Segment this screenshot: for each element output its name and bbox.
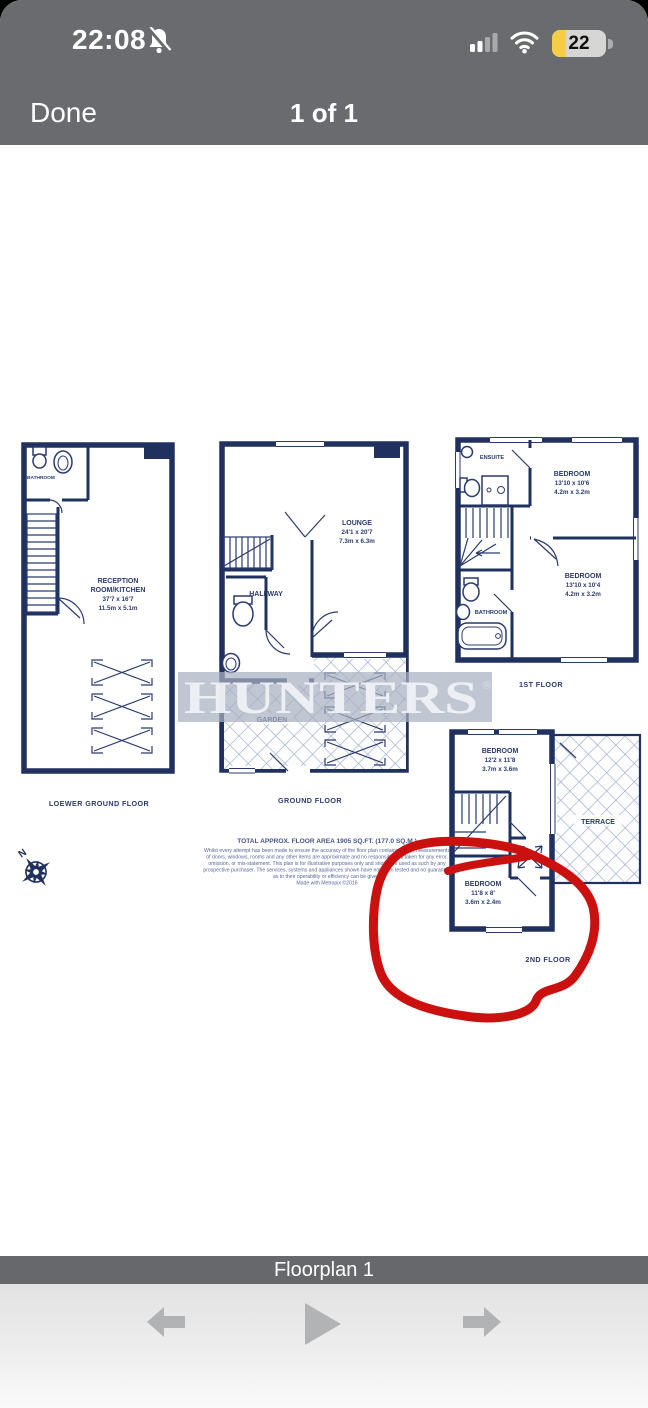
svg-text:Made with Metropix ©2016: Made with Metropix ©2016 <box>296 880 357 887</box>
floor-ground: LOUNGE 24'1 x 20'7 7.3m x 6.3m HALLWAY <box>222 439 408 805</box>
svg-text:N: N <box>17 847 29 860</box>
battery-percentage: 22 <box>552 30 606 57</box>
svg-text:13'10 x 10'4: 13'10 x 10'4 <box>566 582 601 589</box>
svg-text:HUNTERS: HUNTERS <box>184 672 478 724</box>
svg-text:prospective purchaser. The ser: prospective purchaser. The services, sys… <box>203 868 451 874</box>
svg-text:GROUND FLOOR: GROUND FLOOR <box>278 796 342 805</box>
svg-text:4.2m x 3.2m: 4.2m x 3.2m <box>554 489 590 496</box>
svg-text:RECEPTION: RECEPTION <box>98 578 139 585</box>
floorplan-drawing: BATHROOM RECEPTION ROOM/KITCHEN 37'7 x 1… <box>0 145 648 1256</box>
pager-controls <box>0 1284 648 1408</box>
svg-text:BEDROOM: BEDROOM <box>565 573 602 580</box>
svg-text:BEDROOM: BEDROOM <box>482 748 519 755</box>
svg-text:3.6m x 2.4m: 3.6m x 2.4m <box>465 899 501 906</box>
play-button[interactable] <box>305 1303 341 1350</box>
svg-text:12'2 x 11'8: 12'2 x 11'8 <box>485 757 516 764</box>
svg-text:7.3m x 6.3m: 7.3m x 6.3m <box>339 538 375 545</box>
compass-north-icon: N <box>6 839 60 895</box>
svg-text:of doors, windows, rooms and a: of doors, windows, rooms and any other i… <box>206 855 447 861</box>
floorplan-caption: Floorplan 1 <box>274 1259 374 1282</box>
svg-text:as to their operability or eff: as to their operability or efficiency ca… <box>273 874 381 880</box>
svg-text:37'7 x 16'7: 37'7 x 16'7 <box>102 596 134 603</box>
wifi-icon <box>509 31 540 59</box>
svg-text:LOUNGE: LOUNGE <box>342 520 372 527</box>
svg-text:3.7m x 3.6m: 3.7m x 3.6m <box>482 766 518 773</box>
floor-lower-ground: BATHROOM RECEPTION ROOM/KITCHEN 37'7 x 1… <box>24 443 174 808</box>
svg-text:2ND FLOOR: 2ND FLOOR <box>525 955 571 964</box>
svg-text:BEDROOM: BEDROOM <box>465 881 502 888</box>
svg-text:11.5m x 5.1m: 11.5m x 5.1m <box>99 605 138 612</box>
page-indicator: 1 of 1 <box>0 98 648 129</box>
svg-text:LOEWER GROUND FLOOR: LOEWER GROUND FLOOR <box>49 799 150 808</box>
notifications-muted-icon <box>146 27 172 60</box>
svg-text:TERRACE: TERRACE <box>581 819 615 826</box>
battery-icon: 22 <box>552 30 606 57</box>
svg-text:ROOM/KITCHEN: ROOM/KITCHEN <box>91 587 146 594</box>
svg-text:®: ® <box>483 680 491 692</box>
status-time: 22:08 <box>72 24 146 56</box>
next-button[interactable] <box>463 1306 501 1343</box>
battery-cap <box>608 39 613 49</box>
floor-first: ENSUITE BEDROOM 13'10 x 10'6 4.2m x 3.2m… <box>453 435 640 689</box>
photo-viewer-screen: 22:08 <box>0 0 648 1408</box>
cellular-signal-icon <box>470 33 498 57</box>
svg-text:1ST FLOOR: 1ST FLOOR <box>519 680 563 689</box>
top-bar: 22:08 <box>0 0 648 145</box>
previous-button[interactable] <box>147 1306 185 1343</box>
svg-text:4.2m x 3.2m: 4.2m x 3.2m <box>565 591 601 598</box>
arrow-right-icon <box>463 1306 501 1338</box>
svg-text:TOTAL APPROX. FLOOR AREA 1905: TOTAL APPROX. FLOOR AREA 1905 SQ.FT. (17… <box>237 838 417 845</box>
svg-text:BATHROOM: BATHROOM <box>475 610 508 616</box>
hunters-watermark: HUNTERS ® <box>178 672 492 724</box>
svg-text:24'1 x 20'7: 24'1 x 20'7 <box>341 529 373 536</box>
svg-text:13'10 x 10'6: 13'10 x 10'6 <box>555 480 590 487</box>
svg-text:BATHROOM: BATHROOM <box>27 475 55 481</box>
svg-text:BEDROOM: BEDROOM <box>554 471 591 478</box>
svg-text:ENSUITE: ENSUITE <box>480 455 505 461</box>
arrow-left-icon <box>147 1306 185 1338</box>
svg-text:omission, or mis-statement. Th: omission, or mis-statement. This plan is… <box>208 861 446 867</box>
play-icon <box>305 1303 341 1345</box>
floorplan-caption-bar: Floorplan 1 <box>0 1256 648 1284</box>
floorplan-image[interactable]: BATHROOM RECEPTION ROOM/KITCHEN 37'7 x 1… <box>0 145 648 1256</box>
svg-text:11'8 x 8': 11'8 x 8' <box>471 890 495 897</box>
